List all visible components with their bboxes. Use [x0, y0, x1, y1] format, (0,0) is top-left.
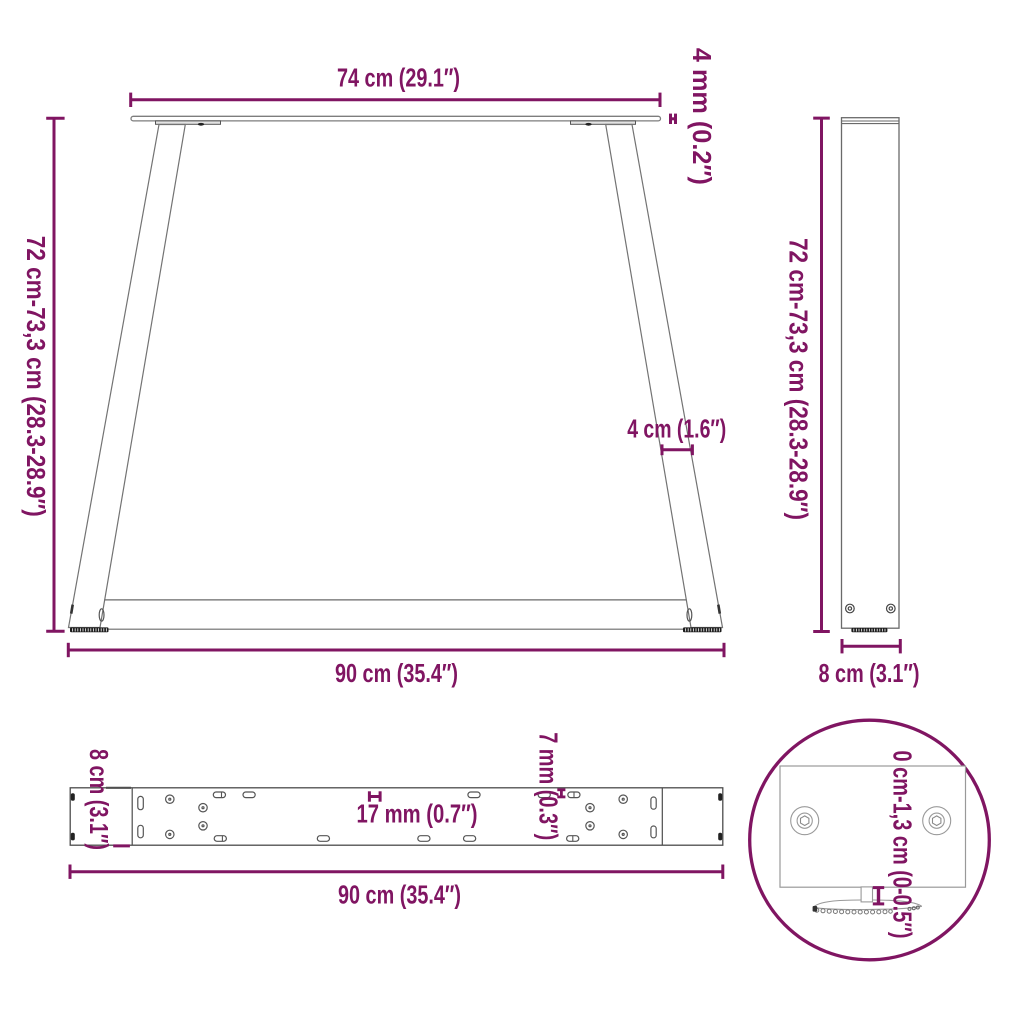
svg-text:90 cm (35.4″): 90 cm (35.4″) [338, 881, 461, 909]
svg-text:17 mm (0.7″): 17 mm (0.7″) [357, 801, 478, 829]
svg-text:4 mm (0.2″): 4 mm (0.2″) [687, 48, 715, 185]
svg-text:72 cm-73,3 cm (28.3-28.9″): 72 cm-73,3 cm (28.3-28.9″) [783, 238, 811, 520]
svg-text:8 cm (3.1″): 8 cm (3.1″) [84, 749, 112, 850]
svg-text:74 cm (29.1″): 74 cm (29.1″) [337, 65, 460, 93]
svg-text:8 cm (3.1″): 8 cm (3.1″) [819, 660, 920, 688]
svg-text:90 cm (35.4″): 90 cm (35.4″) [335, 660, 458, 688]
svg-text:0 cm-1,3 cm (0-0.5″): 0 cm-1,3 cm (0-0.5″) [888, 751, 916, 939]
svg-text:7 mm (0.3″): 7 mm (0.3″) [534, 732, 562, 840]
svg-text:72 cm-73,3 cm (28.3-28.9″): 72 cm-73,3 cm (28.3-28.9″) [21, 236, 49, 517]
svg-text:4 cm (1.6″): 4 cm (1.6″) [627, 415, 726, 443]
